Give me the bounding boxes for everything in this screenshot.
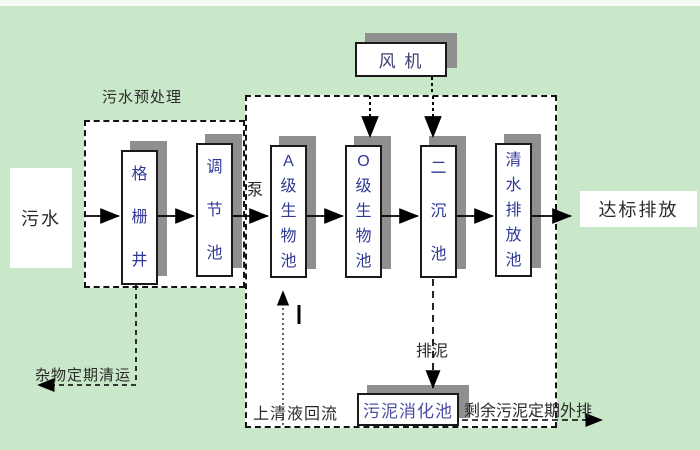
tank-regulating: 调节池 [196, 143, 233, 277]
fan-label: 风 机 [379, 47, 424, 72]
top-edge-strip [0, 0, 700, 6]
tank-clean-water-discharge: 清水排放池 [495, 143, 532, 277]
tank-clean-water-discharge-label: 清水排放池 [505, 148, 523, 273]
tank-regulating-label: 调节池 [206, 146, 224, 275]
sludge-digestion-tank-label: 污泥消化池 [363, 397, 453, 422]
pump-label: 泵 [247, 176, 263, 200]
effluent-label: 达标排放 [599, 196, 679, 222]
tank-secondary-sedimentation: 二沉池 [420, 145, 457, 278]
effluent-label-box: 达标排放 [580, 191, 697, 227]
pretreatment-label: 污水预处理 [102, 86, 182, 107]
tank-a-level-bio-label: A级生物池 [280, 149, 298, 274]
influent-label: 污水 [21, 205, 61, 231]
diagram-canvas: 污水 达标排放 风 机 格栅井 调节池 A级生物池 O级生物池 二沉池 清水排放… [0, 0, 700, 450]
influent-label-box: 污水 [10, 168, 72, 268]
tank-o-level-bio-label: O级生物池 [355, 149, 373, 274]
tank-grid-well: 格栅井 [121, 150, 158, 285]
debris-removal-label: 杂物定期清运 [35, 364, 131, 385]
fan-box: 风 机 [355, 42, 447, 77]
supernatant-return-label: 上清液回流 [253, 400, 338, 424]
tank-a-level-bio: A级生物池 [270, 145, 307, 278]
excess-sludge-label: 剩余污泥定期外排 [464, 397, 592, 421]
tank-secondary-sedimentation-label: 二沉池 [430, 147, 448, 276]
sludge-discharge-label: 排泥 [416, 337, 448, 361]
sludge-digestion-tank-box: 污泥消化池 [357, 393, 459, 426]
tank-grid-well-label: 格栅井 [131, 153, 149, 282]
tank-o-level-bio: O级生物池 [345, 145, 382, 278]
